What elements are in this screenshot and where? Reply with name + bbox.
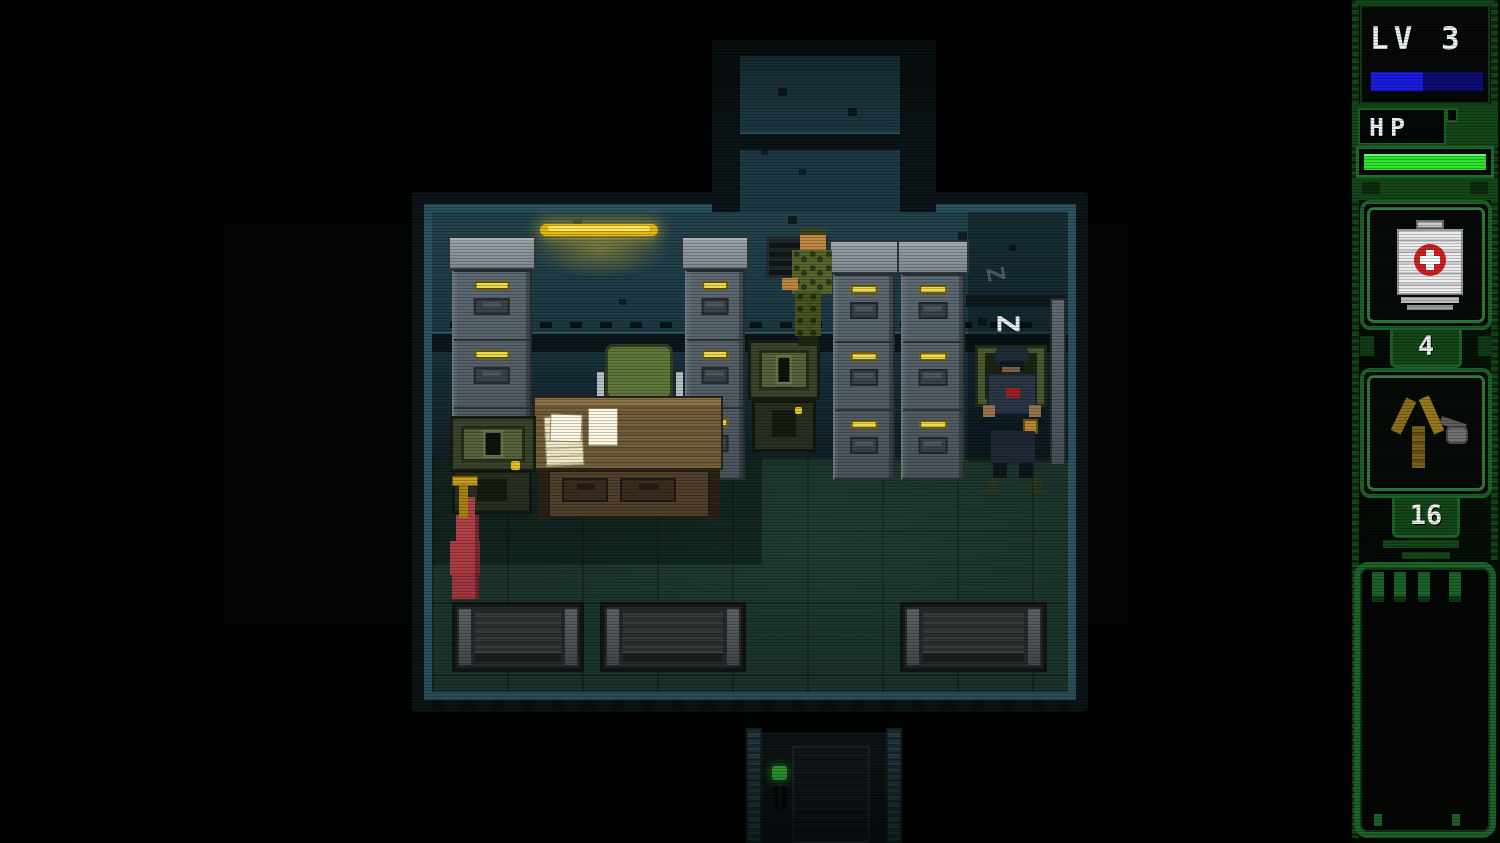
player-soldier bbox=[780, 226, 840, 348]
item-slot-medkit[interactable] bbox=[1360, 200, 1492, 330]
gold-handle bbox=[450, 474, 490, 524]
sleeping-guard bbox=[975, 345, 1047, 495]
notepad-panel bbox=[1354, 562, 1496, 838]
xp-bar bbox=[1370, 71, 1484, 92]
bench bbox=[452, 602, 584, 672]
cabinet-drawer bbox=[835, 276, 893, 343]
bench bbox=[600, 602, 746, 672]
bench bbox=[900, 602, 1047, 672]
field-radio bbox=[450, 416, 536, 472]
slingshot-count-tab: 16 bbox=[1392, 498, 1460, 538]
field-radio bbox=[748, 340, 820, 400]
medkit-count: 4 bbox=[1418, 331, 1434, 362]
door-led bbox=[772, 766, 787, 780]
indicator-light bbox=[795, 407, 802, 414]
filing-cabinet bbox=[901, 274, 965, 480]
filing-cabinet-top bbox=[897, 240, 969, 274]
sleep-z: Z bbox=[990, 314, 1025, 332]
cabinet-drawer bbox=[835, 411, 893, 478]
hp-label: HP bbox=[1369, 113, 1411, 142]
ceiling-lamp bbox=[540, 224, 658, 236]
hp-bar bbox=[1356, 146, 1494, 178]
game-viewport[interactable]: Z Z bbox=[0, 0, 1500, 843]
corridor-trim bbox=[740, 132, 900, 150]
level-label: LV 3 bbox=[1370, 21, 1465, 57]
wall-stains bbox=[0, 0, 5, 4]
slingshot-count: 16 bbox=[1410, 500, 1443, 531]
hud-right-rail bbox=[1491, 0, 1498, 560]
filing-cabinet bbox=[833, 274, 895, 480]
hud-connector bbox=[1402, 552, 1450, 559]
hud-connector bbox=[1383, 540, 1459, 548]
indicator-light bbox=[511, 461, 520, 470]
papers bbox=[588, 408, 618, 446]
medkit-icon bbox=[1397, 220, 1463, 312]
cabinet-drawer bbox=[903, 343, 963, 410]
level-panel: LV 3 bbox=[1360, 5, 1490, 104]
band-notch bbox=[1470, 182, 1488, 194]
medkit-count-tab: 4 bbox=[1390, 330, 1462, 368]
exit-door[interactable] bbox=[762, 732, 886, 843]
slingshot-icon bbox=[1394, 394, 1470, 480]
cabinet-drawer bbox=[454, 341, 530, 410]
lamp-glow bbox=[500, 226, 700, 306]
tab-wing bbox=[1478, 336, 1492, 356]
item-slot-slingshot[interactable] bbox=[1360, 368, 1492, 498]
door-pillar bbox=[746, 728, 762, 843]
cabinet-drawer bbox=[903, 411, 963, 478]
band-notch bbox=[1362, 182, 1380, 194]
field-radio-base bbox=[752, 400, 816, 452]
side-pillar bbox=[1050, 298, 1066, 466]
hp-label-tab: HP bbox=[1358, 108, 1446, 145]
hp-tab-step bbox=[1446, 108, 1458, 122]
door-pillar bbox=[886, 728, 902, 843]
xp-bar-fill bbox=[1371, 72, 1423, 91]
bottom-wall-texture bbox=[432, 700, 1068, 710]
tab-wing bbox=[1360, 336, 1374, 356]
papers bbox=[550, 413, 583, 442]
cabinet-drawer bbox=[903, 276, 963, 343]
hp-bar-fill bbox=[1364, 154, 1486, 170]
cabinet-drawer bbox=[835, 343, 893, 410]
